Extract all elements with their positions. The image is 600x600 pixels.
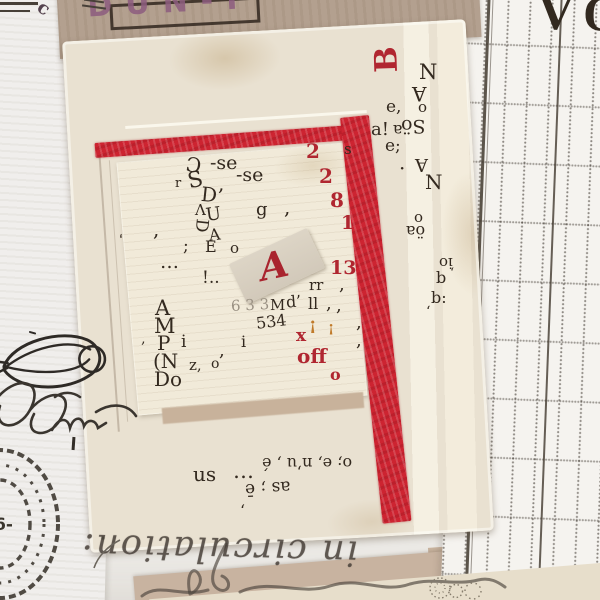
- ledger-rule-line: [537, 0, 563, 600]
- double-rule-mark: [0, 10, 30, 12]
- collage-photo: VO DUN-F A Ɔ-serS-seD’VUg,DA,;Eo…!..‘‚AM…: [0, 0, 600, 600]
- double-rule-mark: [0, 2, 38, 5]
- postmark-stamp: -6-: [0, 436, 80, 600]
- postmark-date: -6-: [0, 515, 13, 535]
- grid-corner-letters: VO: [537, 0, 600, 44]
- tape-letter-a: A: [255, 241, 292, 290]
- faint-pencil-curve: [90, 532, 128, 572]
